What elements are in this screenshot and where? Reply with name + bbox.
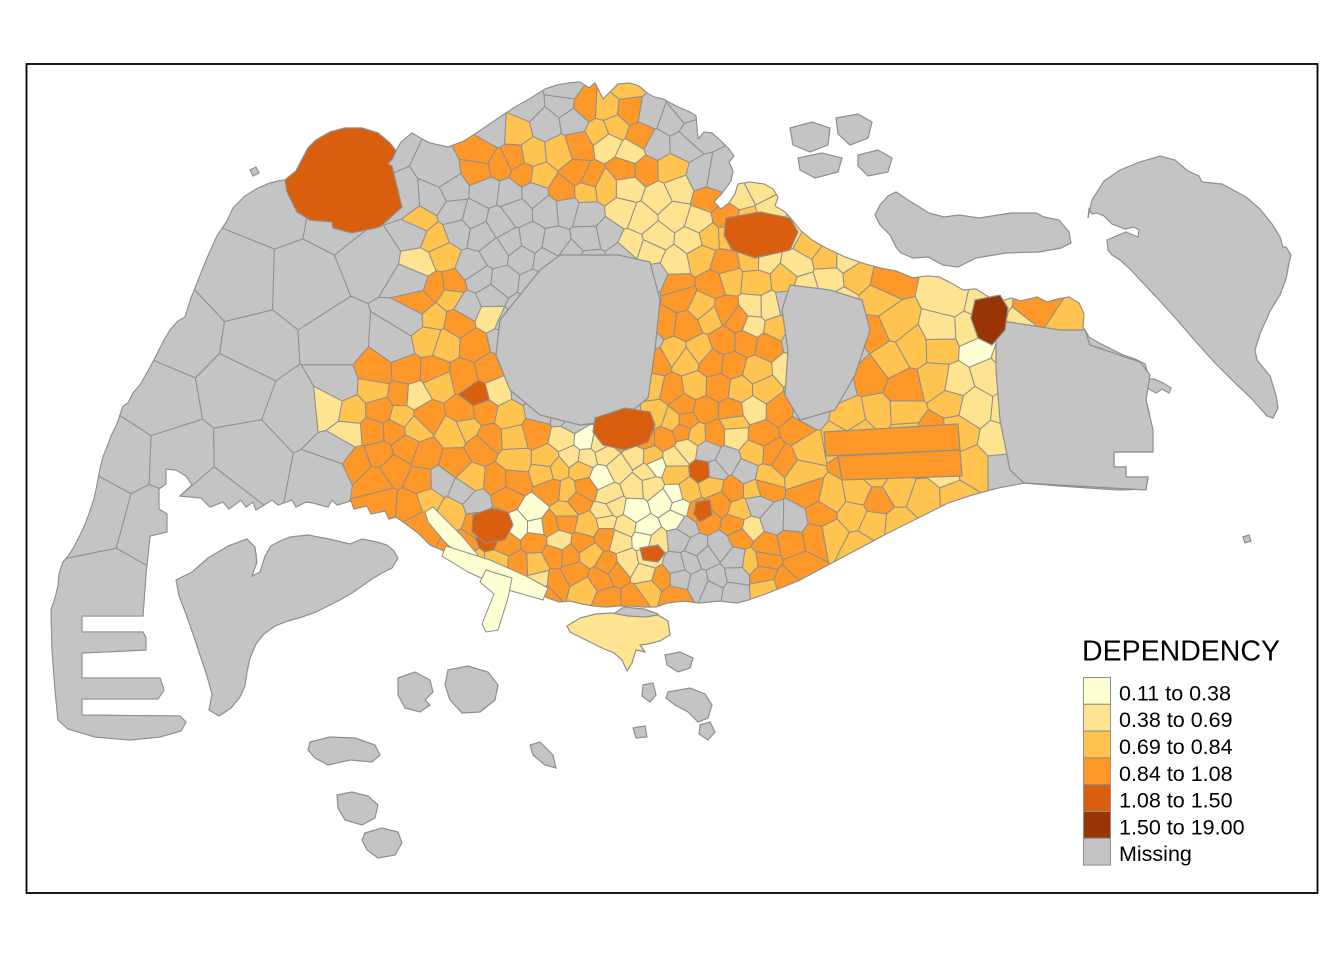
svg-text:DEPENDENCY: DEPENDENCY <box>1082 636 1280 668</box>
svg-text:1.50 to 19.00: 1.50 to 19.00 <box>1119 815 1245 839</box>
svg-text:Missing: Missing <box>1119 842 1192 866</box>
svg-text:0.11 to 0.38: 0.11 to 0.38 <box>1119 681 1231 705</box>
svg-text:1.08 to 1.50: 1.08 to 1.50 <box>1119 789 1233 813</box>
svg-text:0.38 to 0.69: 0.38 to 0.69 <box>1119 708 1233 732</box>
svg-text:0.84 to 1.08: 0.84 to 1.08 <box>1119 762 1233 786</box>
svg-text:0.69 to 0.84: 0.69 to 0.84 <box>1119 735 1233 759</box>
